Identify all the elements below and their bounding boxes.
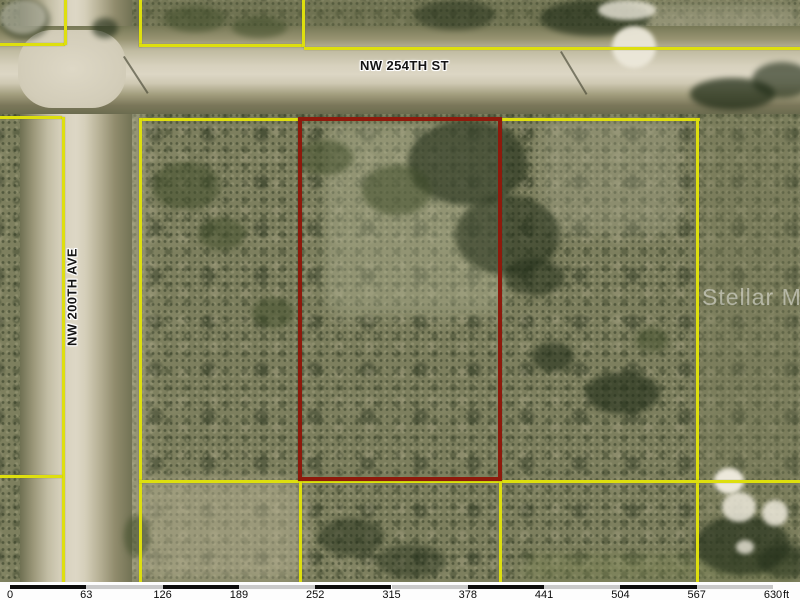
scale-tick-label: 504: [611, 589, 629, 600]
scale-tick-label: 378: [459, 589, 477, 600]
parcel-boundary-line: [304, 47, 800, 50]
parcel-boundary-line: [0, 475, 62, 478]
tree-cluster: [585, 372, 660, 414]
tree-cluster: [636, 328, 668, 352]
parcel-boundary-line: [299, 481, 302, 582]
tree-cluster: [318, 518, 384, 556]
parcel-boundary-line: [0, 43, 65, 46]
scale-tick-label: 315: [382, 589, 400, 600]
sand-patch: [736, 540, 754, 554]
parcel-boundary-line: [696, 118, 699, 582]
parcel-boundary-line: [139, 44, 304, 47]
parcel-boundary-line: [139, 0, 142, 47]
street-label-nw-254th-st: NW 254TH ST: [360, 58, 449, 73]
tree-cluster: [232, 16, 287, 38]
parcel-boundary-line: [0, 116, 62, 119]
aerial-parcel-map: NW 254TH ST NW 200TH AVE Stellar MLS 063…: [0, 0, 800, 600]
scale-tick-label: 441: [535, 589, 553, 600]
scale-tick-label: 63: [80, 589, 92, 600]
sand-patch: [0, 0, 46, 34]
scale-tick-label: 567: [688, 589, 706, 600]
tree-cluster: [252, 298, 294, 328]
parcel-boundary-line: [499, 481, 502, 582]
stellar-mls-watermark: Stellar MLS: [702, 284, 800, 311]
tree-cluster: [505, 258, 565, 296]
sand-patch: [762, 500, 788, 526]
terrain-tint: [140, 478, 305, 582]
tree-cluster: [198, 218, 246, 250]
scale-tick-label: 0: [7, 589, 13, 600]
sand-patch: [598, 0, 656, 20]
scale-bar: 063126189252315378441504567630ft: [0, 582, 800, 600]
street-label-nw-200th-ave: NW 200TH AVE: [65, 248, 80, 346]
scale-tick-label: 126: [153, 589, 171, 600]
highlighted-parcel-outline: [298, 117, 502, 481]
tree-cluster: [124, 515, 150, 557]
scale-unit-label: ft: [783, 589, 789, 600]
road-intersection: [18, 30, 126, 108]
tree-cluster: [92, 18, 118, 38]
scale-bar-labels: 063126189252315378441504567630ft: [0, 589, 800, 600]
scale-tick-label: 630: [764, 589, 782, 600]
tree-cluster: [415, 0, 495, 30]
terrain-tint: [540, 115, 680, 235]
sand-patch: [722, 492, 756, 522]
parcel-boundary-line: [139, 118, 142, 582]
tree-cluster: [376, 544, 446, 578]
tree-cluster: [152, 162, 220, 210]
parcel-boundary-line: [62, 117, 65, 582]
parcel-boundary-line: [64, 0, 67, 45]
scale-tick-label: 189: [230, 589, 248, 600]
tree-cluster: [532, 342, 574, 372]
scale-tick-label: 252: [306, 589, 324, 600]
parcel-boundary-line: [302, 0, 305, 47]
tree-cluster: [165, 6, 225, 32]
